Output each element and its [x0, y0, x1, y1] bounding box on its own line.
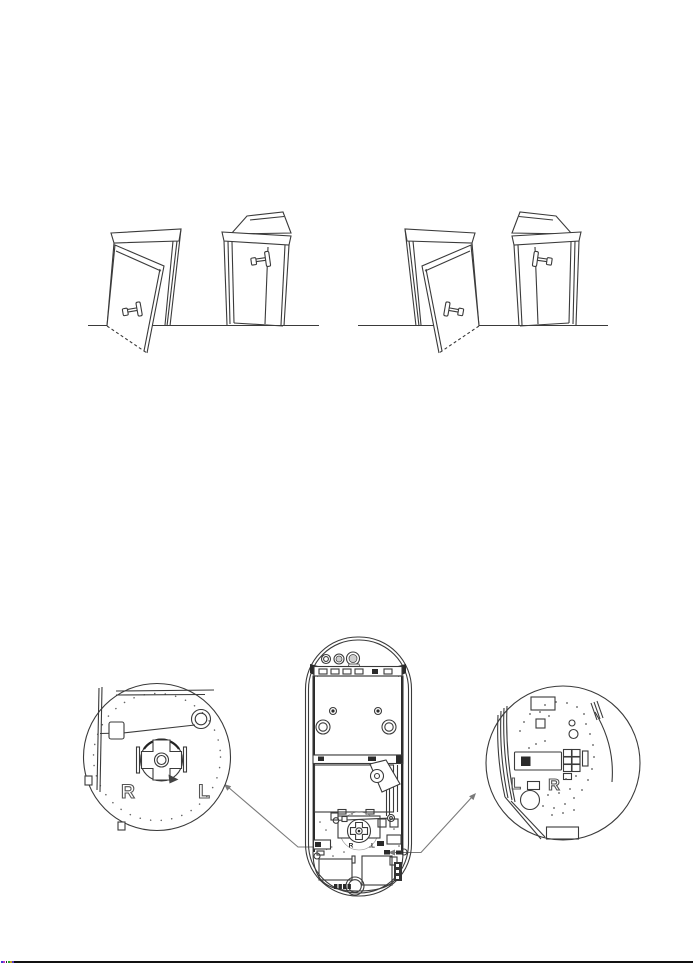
left-callout-label-r: R — [121, 782, 135, 803]
registration-mark — [12, 961, 14, 963]
door-open-outward — [107, 229, 181, 353]
cable-block — [109, 722, 124, 739]
manual-page: R L — [0, 0, 693, 969]
left-callout: R L — [84, 684, 231, 831]
right-callout-label-l: L — [511, 776, 521, 793]
door-handle — [250, 251, 271, 268]
lock-device: R L — [306, 637, 412, 896]
battery-bay — [313, 755, 403, 816]
terminal-strip — [310, 664, 406, 677]
pcb-label-l: L — [371, 843, 375, 850]
device-bottom-components — [314, 849, 407, 895]
door-open-outward-mirrored — [405, 229, 479, 353]
right-callout: L R — [486, 686, 640, 840]
door-diagrams — [88, 212, 608, 353]
pcb-label-r: R — [349, 843, 354, 850]
slide-switch-knob[interactable] — [521, 757, 531, 767]
component-box-left — [319, 859, 352, 880]
door-open-inward-mirrored — [512, 212, 581, 326]
door-open-inward — [222, 212, 291, 326]
left-callout-label-l: L — [198, 782, 210, 803]
component-box-right — [362, 856, 392, 885]
mounting-screws — [316, 708, 396, 735]
mounting-plate — [313, 676, 403, 755]
footer-registration-marks — [1, 961, 14, 963]
footer-rule — [14, 961, 693, 963]
right-callout-label-r: R — [548, 777, 560, 794]
device-pcb: R L — [314, 812, 404, 857]
